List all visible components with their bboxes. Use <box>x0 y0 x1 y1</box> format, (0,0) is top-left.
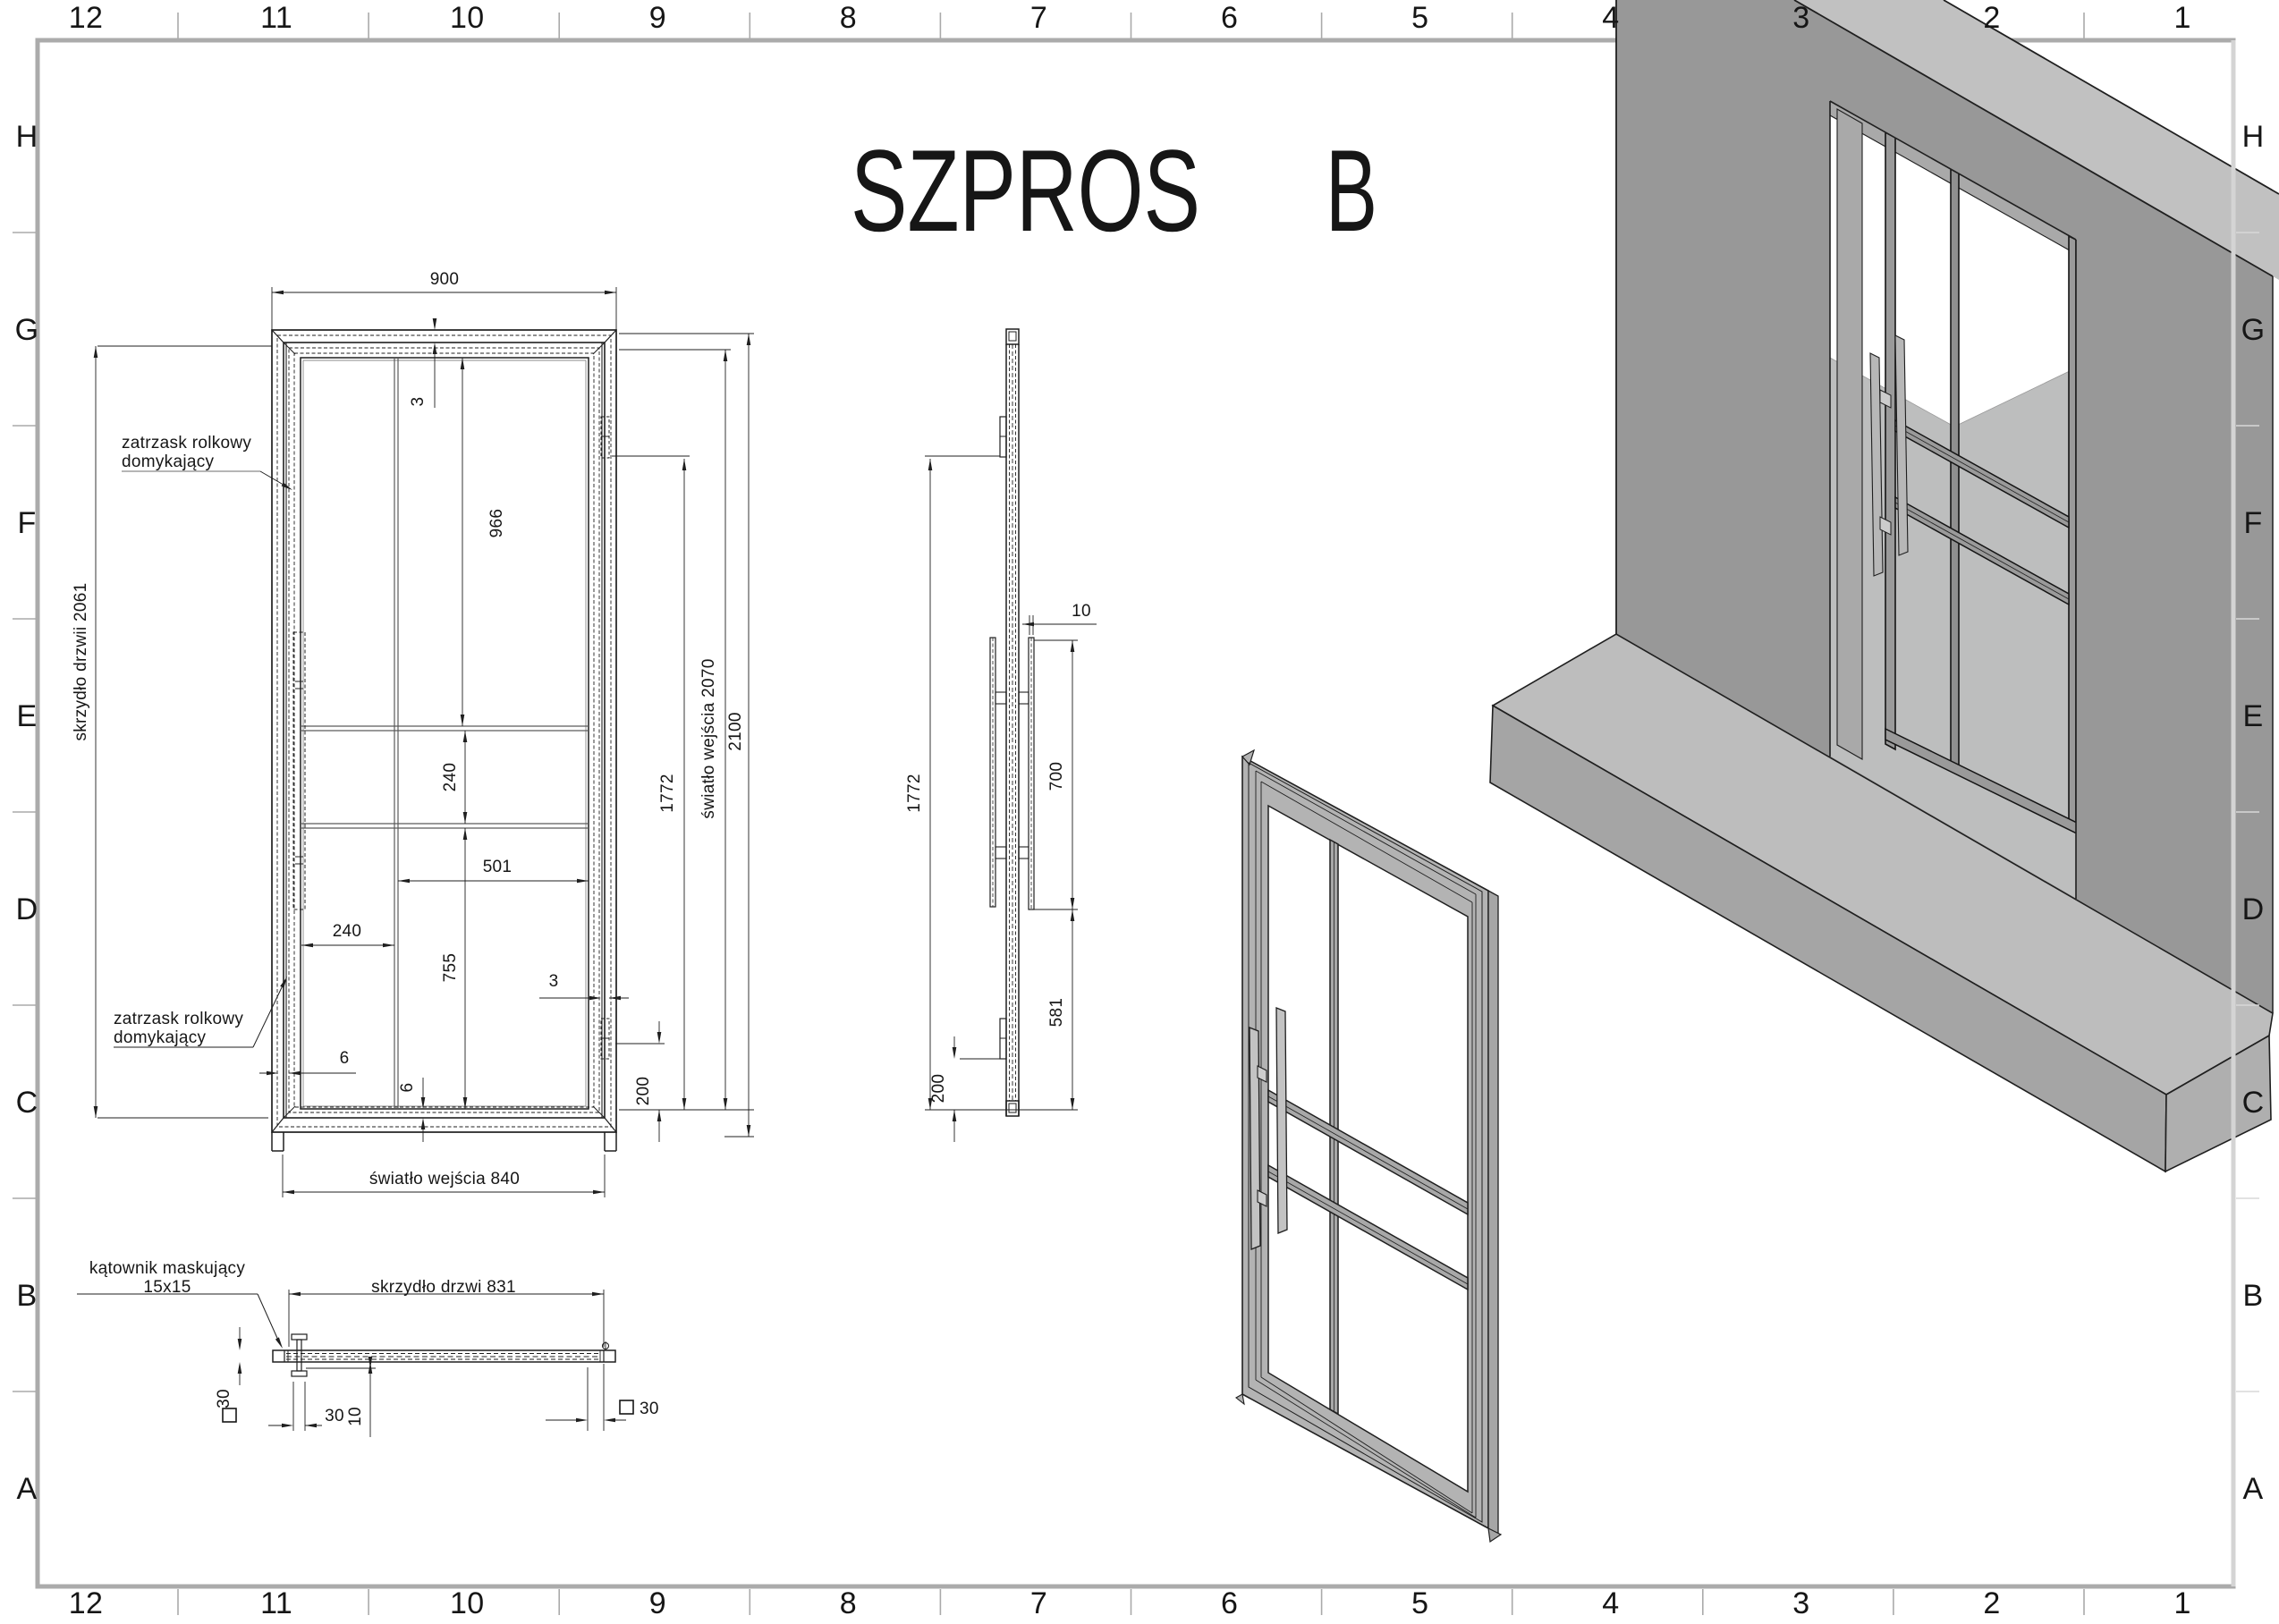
svg-text:6: 6 <box>1221 1586 1238 1620</box>
svg-text:E: E <box>17 699 38 733</box>
svg-text:C: C <box>2242 1086 2265 1120</box>
svg-text:2: 2 <box>1983 1586 2000 1620</box>
svg-text:H: H <box>2242 120 2265 154</box>
svg-text:C: C <box>16 1086 38 1120</box>
svg-text:966: 966 <box>487 509 506 538</box>
svg-text:B: B <box>17 1279 38 1313</box>
svg-text:581: 581 <box>1047 998 1066 1028</box>
svg-text:10: 10 <box>450 1586 484 1620</box>
svg-text:2100: 2100 <box>726 712 745 750</box>
svg-text:H: H <box>16 120 38 154</box>
svg-text:3: 3 <box>409 397 428 407</box>
svg-text:1: 1 <box>2173 1586 2190 1620</box>
svg-text:12: 12 <box>69 1 103 35</box>
svg-text:900: 900 <box>430 270 460 289</box>
svg-text:10: 10 <box>450 1 484 35</box>
svg-text:F: F <box>2243 506 2262 540</box>
svg-text:A: A <box>2243 1472 2264 1506</box>
svg-text:200: 200 <box>634 1077 653 1106</box>
svg-text:240: 240 <box>333 922 362 941</box>
svg-text:D: D <box>2242 892 2265 926</box>
svg-text:9: 9 <box>649 1586 666 1620</box>
svg-text:10: 10 <box>346 1407 365 1426</box>
svg-text:755: 755 <box>441 953 460 983</box>
svg-text:30: 30 <box>215 1389 233 1408</box>
svg-text:1772: 1772 <box>658 774 677 812</box>
svg-text:1772: 1772 <box>905 774 924 812</box>
svg-text:30: 30 <box>640 1400 659 1418</box>
svg-text:2: 2 <box>1983 1 2000 35</box>
svg-text:3: 3 <box>1792 1 1809 35</box>
svg-text:7: 7 <box>1030 1586 1047 1620</box>
svg-text:11: 11 <box>260 1586 292 1620</box>
svg-text:9: 9 <box>649 1 666 35</box>
svg-text:światło wejścia 2070: światło wejścia 2070 <box>699 658 718 818</box>
svg-text:A: A <box>17 1472 38 1506</box>
svg-text:światło wejścia 840: światło wejścia 840 <box>369 1170 520 1188</box>
svg-text:8: 8 <box>840 1 857 35</box>
svg-text:4: 4 <box>1602 1586 1619 1620</box>
svg-text:11: 11 <box>260 1 292 35</box>
svg-text:8: 8 <box>840 1586 857 1620</box>
svg-text:3: 3 <box>549 972 559 991</box>
svg-text:G: G <box>15 313 39 347</box>
svg-text:200: 200 <box>929 1074 948 1104</box>
svg-text:zatrzask rolkowy: zatrzask rolkowy <box>114 1010 243 1028</box>
svg-text:1: 1 <box>2173 1 2190 35</box>
svg-text:700: 700 <box>1047 762 1066 791</box>
svg-text:5: 5 <box>1411 1 1428 35</box>
svg-text:12: 12 <box>69 1586 103 1620</box>
svg-text:4: 4 <box>1602 1 1619 35</box>
svg-text:kątownik maskujący: kątownik maskujący <box>89 1259 246 1278</box>
svg-text:5: 5 <box>1411 1586 1428 1620</box>
svg-text:501: 501 <box>483 858 513 876</box>
svg-text:SZPROS: SZPROS <box>851 125 1200 256</box>
svg-text:10: 10 <box>1072 602 1091 621</box>
svg-text:7: 7 <box>1030 1 1047 35</box>
svg-text:zatrzask rolkowy: zatrzask rolkowy <box>122 434 251 453</box>
svg-text:domykający: domykający <box>122 453 215 471</box>
svg-text:6: 6 <box>340 1049 350 1068</box>
svg-text:E: E <box>2243 699 2264 733</box>
svg-text:domykający: domykający <box>114 1028 207 1047</box>
svg-text:3: 3 <box>1792 1586 1809 1620</box>
svg-text:B: B <box>1326 125 1377 256</box>
svg-text:30: 30 <box>325 1407 344 1425</box>
svg-text:B: B <box>2243 1279 2264 1313</box>
svg-text:D: D <box>16 892 38 926</box>
svg-text:skrzydło drzwii 2061: skrzydło drzwii 2061 <box>72 582 90 740</box>
svg-text:G: G <box>2241 313 2266 347</box>
svg-text:F: F <box>17 506 36 540</box>
svg-text:6: 6 <box>1221 1 1238 35</box>
svg-text:240: 240 <box>441 763 460 792</box>
svg-text:6: 6 <box>398 1083 417 1093</box>
